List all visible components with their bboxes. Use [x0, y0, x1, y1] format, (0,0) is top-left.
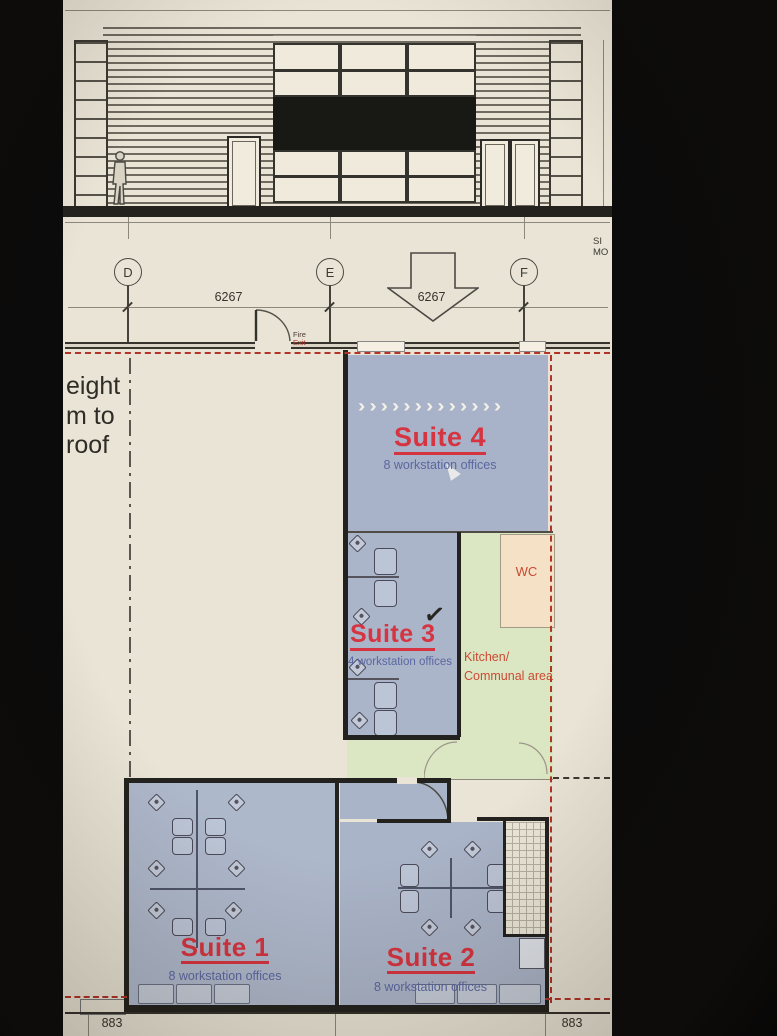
bottom-dim-left: 883 [92, 1016, 132, 1030]
desk [172, 837, 193, 855]
grid-line-f [523, 285, 525, 343]
grid-letter-e: E [326, 265, 335, 280]
elevation-right-pier [549, 40, 583, 211]
desk [374, 548, 397, 575]
elevation-door-right-2 [510, 139, 540, 211]
entry-door-swing [413, 781, 449, 822]
elevation-base-line [65, 222, 610, 223]
site-boundary-bottom-left [65, 996, 127, 998]
kitchen-south-line [451, 779, 553, 780]
corridor-area [451, 780, 547, 818]
desk [400, 890, 419, 913]
stair-west-wall [503, 819, 506, 937]
suite4-door-leaf-1 [357, 341, 405, 352]
bottom-dim-right: 883 [552, 1016, 592, 1030]
desk [205, 818, 226, 836]
suite3-east-wall [457, 532, 461, 737]
copier-desk [519, 938, 545, 969]
kitchen-label-line2: Communal area [464, 667, 553, 686]
storage-bench [176, 984, 212, 1004]
wc-area [500, 534, 555, 628]
desk [400, 864, 419, 887]
suite2-label: Suite 2 [370, 944, 492, 974]
margin-note: SI MO [593, 236, 608, 259]
person-figure [109, 150, 131, 208]
height-note-line3: roof [66, 431, 120, 461]
kitchen-label: Kitchen/ Communal area [464, 648, 553, 687]
boundary-continuation [553, 777, 610, 779]
fire-exit-label-line2: Exit [293, 339, 306, 347]
elevation-top-line [65, 10, 610, 11]
grid-line-d [127, 285, 129, 343]
grid-tick-d [128, 217, 129, 239]
suite-divider-wall [335, 778, 339, 1012]
kitchen-door-swing-2 [518, 742, 548, 775]
wc-label: WC [500, 564, 553, 579]
site-boundary-bottom-right [545, 998, 610, 1000]
dimension-line [68, 307, 608, 308]
kitchen-label-line1: Kitchen/ [464, 648, 553, 667]
storage-bench [214, 984, 250, 1004]
stair-south-wall [503, 934, 549, 937]
suite1-label: Suite 1 [160, 934, 290, 964]
corridor-west-wall [447, 778, 451, 823]
photo-margin-right [612, 0, 777, 1036]
elevation-dark-band [273, 97, 476, 150]
fire-exit-opening [255, 341, 291, 350]
suite1-name: Suite 1 [181, 934, 270, 964]
desk-spine [196, 790, 198, 948]
height-note-line1: eight [66, 372, 120, 402]
suite3-south-wall [343, 735, 460, 740]
desk-spine [150, 888, 245, 890]
direction-chevrons-icon: ››››››››››››› [358, 395, 548, 417]
site-boundary-top [65, 352, 610, 354]
elevation-glazing [273, 43, 476, 203]
fire-exit-door-swing [254, 309, 292, 344]
elevation-left-pier [74, 40, 108, 211]
bottom-tick [545, 1014, 546, 1036]
grid-bubble-f: F [510, 258, 538, 286]
margin-note-line2: MO [593, 247, 608, 258]
dim-label-left: 6267 [195, 290, 262, 304]
photo-margin-left [0, 0, 63, 1036]
elevation-door-left [227, 136, 261, 211]
storage-bench [138, 984, 174, 1004]
fire-exit-label: Fire Exit [293, 331, 306, 348]
dim-label-right: 6267 [398, 290, 465, 304]
suite4-desc: 8 workstation offices [360, 458, 520, 472]
grid-bubble-e: E [316, 258, 344, 286]
storage-bench [499, 984, 541, 1004]
margin-note-line1: SI [593, 236, 608, 247]
stair-area [505, 822, 547, 934]
suite4-south-line [347, 531, 553, 533]
suite3-desc: 4 workstation offices [348, 656, 463, 668]
stair-north-wall [477, 817, 549, 821]
elevation-ground-band [63, 206, 612, 217]
desk [172, 818, 193, 836]
floor-plan-photo: D E F 6267 6267 SI MO Fire Exit eight m … [0, 0, 777, 1036]
bottom-slab-line [65, 1012, 610, 1014]
entry-south-wall [377, 819, 451, 823]
down-arrow [387, 252, 479, 322]
centreline-d [129, 358, 131, 778]
suite34-west-wall [343, 350, 348, 740]
check-mark-icon: ✓ [422, 599, 447, 632]
glazing-cap-line [273, 35, 476, 36]
height-note: eight m to roof [66, 372, 120, 461]
desk [374, 580, 397, 607]
suite4-label: Suite 4 [375, 424, 505, 455]
desk-spine [347, 678, 399, 680]
suite2-name: Suite 2 [387, 944, 476, 974]
suite2-entry-opening [397, 777, 417, 784]
kitchen-door-swing-1 [424, 741, 458, 780]
grid-bubble-d: D [114, 258, 142, 286]
suite4-door-leaf-2 [519, 341, 546, 352]
suite2-desc: 8 workstation offices [363, 980, 498, 994]
desk [374, 710, 397, 736]
suite4-name: Suite 4 [394, 424, 486, 455]
suite1-desc: 8 workstation offices [150, 969, 300, 983]
desk-spine [347, 576, 399, 578]
elevation-door-right-1 [480, 139, 510, 211]
grid-letter-f: F [520, 265, 528, 280]
grid-tick-f [524, 217, 525, 239]
desk-spine [398, 887, 505, 889]
desk-spine [450, 858, 452, 918]
height-note-line2: m to [66, 402, 120, 432]
grid-letter-d: D [123, 265, 132, 280]
desk [374, 682, 397, 709]
desk [205, 837, 226, 855]
grid-tick-e [330, 217, 331, 239]
grid-line-e [329, 285, 331, 343]
bottom-tick [335, 1014, 336, 1036]
elevation-right-edge-line [603, 40, 604, 207]
suite1-west-wall [124, 778, 129, 1012]
east-wall [545, 817, 549, 1012]
